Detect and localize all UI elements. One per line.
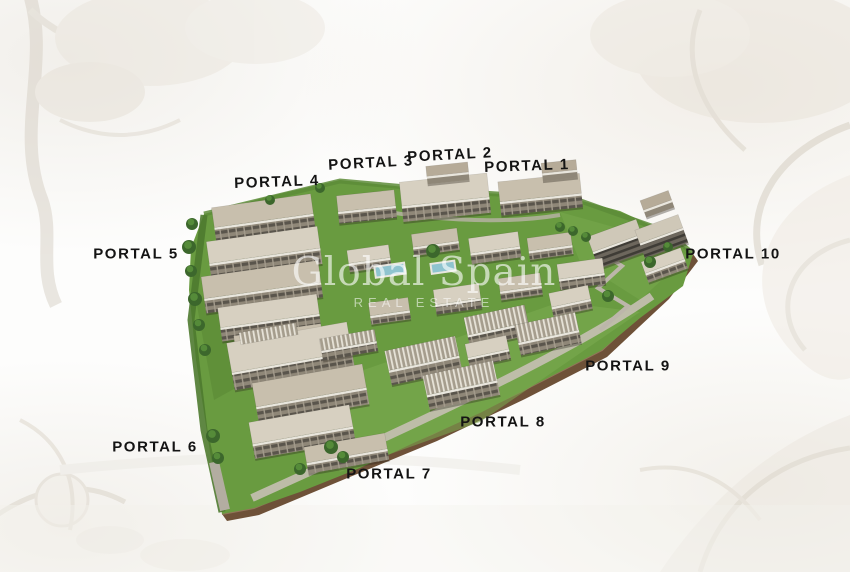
portal-8-label: PORTAL 8 [460, 414, 546, 431]
portal-4-label: PORTAL 4 [234, 172, 320, 192]
portal-5-label: PORTAL 5 [93, 246, 179, 263]
site-render [0, 0, 850, 572]
portal-9-label: PORTAL 9 [585, 358, 671, 375]
portal-6-label: PORTAL 6 [112, 439, 198, 456]
site-plan-image: PORTAL 1 PORTAL 2 PORTAL 3 PORTAL 4 PORT… [0, 0, 850, 572]
portal-1-label: PORTAL 1 [484, 156, 570, 176]
portal-10-label: PORTAL 10 [685, 246, 781, 263]
portal-7-label: PORTAL 7 [346, 466, 432, 483]
